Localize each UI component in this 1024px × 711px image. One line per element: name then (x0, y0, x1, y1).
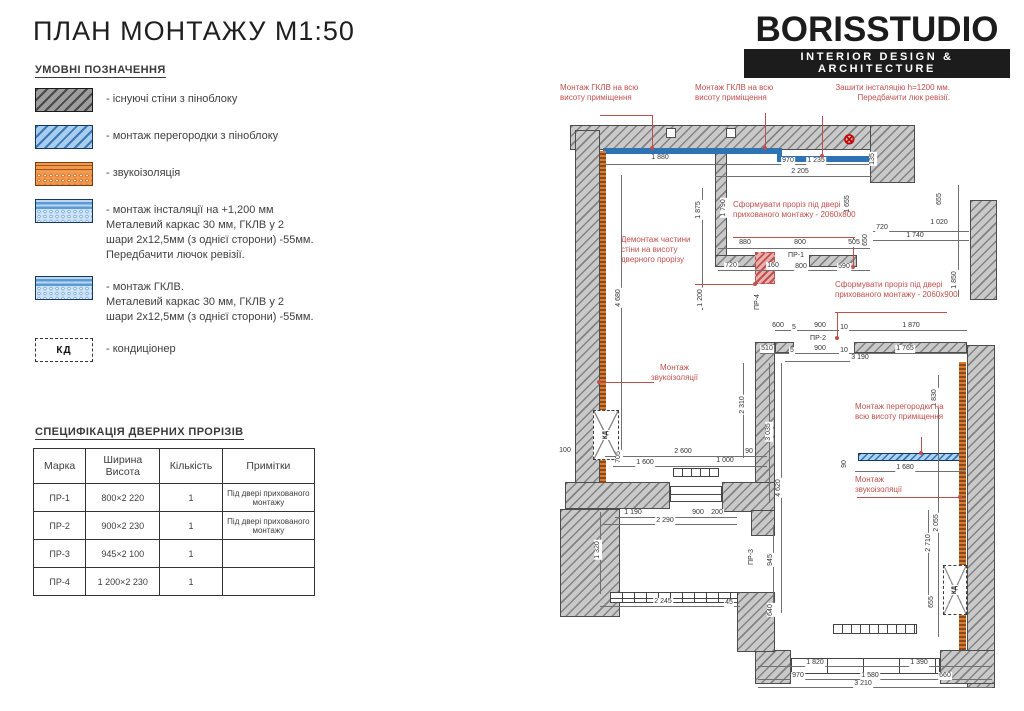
spec-row: ПР-41 200×2 2301 (34, 568, 315, 596)
dimension-label: 2 310 (739, 395, 747, 415)
vent-notch (666, 128, 676, 138)
inst-swatch (35, 199, 93, 223)
dimension-label: 900 (813, 345, 827, 353)
dimension-label: 160 (766, 262, 780, 270)
dimension-label: 90 (841, 459, 849, 469)
dimension-label: 945 (767, 553, 775, 567)
spec-cell: ПР-2 (34, 512, 86, 540)
window (610, 592, 738, 603)
spec-heading: СПЕЦИФІКАЦІЯ ДВЕРНИХ ПРОРІЗІВ (35, 426, 244, 440)
plan-annotation: Сформувати проріз під двері прихованого … (835, 280, 963, 300)
dimension-label: 1 870 (901, 322, 921, 330)
spec-cell: ПР-4 (34, 568, 86, 596)
plan-annotation: Сформувати проріз під двері прихованого … (733, 200, 861, 220)
spec-col-header: Примітки (222, 449, 314, 484)
spec-cell: ПР-3 (34, 540, 86, 568)
floor-plan: КД КД ⊗ 1 8809701 2352 20588080050572 (555, 80, 1020, 710)
logo-name: BORISSTUDIO (744, 12, 1010, 48)
dimension-line (758, 666, 992, 667)
dimension-label: 720 (875, 224, 889, 232)
dimension-label: 1 235 (806, 157, 826, 165)
leader-line (600, 115, 652, 116)
spec-cell: ПР-1 (34, 484, 86, 512)
opening-mark: ПР-4 (754, 293, 762, 311)
dimension-label: 800 (793, 239, 807, 247)
dimension-label: 640 (767, 603, 775, 617)
leader-dot (958, 495, 962, 499)
wall-segment (751, 510, 775, 536)
dimension-label: 4 620 (775, 478, 783, 498)
spec-cell: 945×2 100 (86, 540, 160, 568)
spec-row: ПР-1800×2 2201Під двері прихованого монт… (34, 484, 315, 512)
leader-line (733, 237, 855, 238)
dimension-label: 900 (813, 322, 827, 330)
window (670, 486, 722, 502)
leader-dot (597, 380, 601, 384)
dimension-label: 90 (744, 448, 754, 456)
dimension-label: 590 (837, 263, 851, 271)
dimension-label: 1 020 (929, 219, 949, 227)
spec-cell: 1 (160, 540, 223, 568)
dimension-label: 3 210 (853, 680, 873, 688)
spec-col-header: Кількість (160, 449, 223, 484)
dimension-label: 4 680 (615, 288, 623, 308)
dimension-label: 650 (862, 233, 870, 247)
cond-swatch: КД (35, 338, 93, 362)
spec-cell: 1 (160, 512, 223, 540)
wall-segment (970, 200, 997, 300)
dimension-label: 10 (839, 324, 849, 332)
partition-swatch (35, 125, 93, 149)
dimension-label: 1 875 (695, 200, 703, 220)
dimension-label: 2 055 (933, 513, 941, 533)
spec-cell: 900×2 230 (86, 512, 160, 540)
leader-dot (650, 146, 654, 150)
legend-label: - звукоізоляція (106, 162, 180, 181)
dimension-label: 880 (738, 239, 752, 247)
dimension-label: 45 (724, 599, 734, 607)
dimension-label: 1 820 (805, 659, 825, 667)
dimension-label: 1 320 (594, 540, 602, 560)
plan-annotation: Монтаж перегородки на всю висоту приміще… (855, 402, 947, 422)
dimension-label: 800 (794, 263, 808, 271)
leader-line (822, 116, 823, 154)
studio-logo: BORISSTUDIO INTERIOR DESIGN & ARCHITECTU… (744, 12, 1010, 78)
dimension-line (615, 517, 737, 518)
spec-table: МаркаШирина ВисотаКількістьПримітки ПР-1… (33, 448, 315, 596)
leader-line (837, 312, 838, 338)
legend-label: - монтаж інсталяції на +1,200 ммМеталеви… (106, 199, 314, 263)
dimension-label: 510 (760, 345, 774, 353)
spec-cell: 1 200×2 230 (86, 568, 160, 596)
leader-dot (753, 282, 757, 286)
spec-cell: 1 (160, 484, 223, 512)
dimension-label: 900 (691, 509, 705, 517)
dimension-label: 3 190 (850, 354, 870, 362)
wall-segment (967, 345, 995, 688)
legend-heading: УМОВНІ ПОЗНАЧЕННЯ (35, 64, 166, 78)
dimension-label: 2 290 (655, 517, 675, 525)
plan-annotation: Зашити інсталяцію h=1200 мм. Передбачити… (810, 83, 950, 103)
spec-body: ПР-1800×2 2201Під двері прихованого монт… (34, 484, 315, 596)
opening-mark: ПР-3 (748, 548, 756, 566)
dimension-label: 135 (869, 152, 877, 166)
spec-col-header: Ширина Висота (86, 449, 160, 484)
legend-label: - кондиціонер (106, 338, 176, 357)
leader-line (857, 497, 961, 498)
plan-annotation: Монтаж ГКЛВ на всю висоту приміщення (695, 83, 795, 103)
dimension-label: 1 580 (860, 672, 880, 680)
plan-annotation: Монтаж звукоізоляції (855, 475, 930, 495)
spec-cell (222, 540, 314, 568)
plan-annotation: Монтаж ГКЛВ на всю висоту приміщення (560, 83, 660, 103)
legend-item: - звукоізоляція (35, 162, 365, 186)
wall-segment (737, 592, 775, 652)
dimension-label: 655 (928, 595, 936, 609)
dimension-line (775, 330, 967, 331)
legend-item: - монтаж ГКЛВ.Металевий каркас 30 мм, ГК… (35, 276, 365, 325)
dimension-label: 1 600 (635, 459, 655, 467)
dimension-label: 655 (936, 192, 944, 206)
legend-item: КД- кондиціонер (35, 338, 365, 362)
dimension-label: 970 (781, 157, 795, 165)
dimension-line (873, 240, 969, 241)
dimension-label: 1 765 (895, 345, 915, 353)
dimension-label: 1 790 (720, 198, 728, 218)
dimension-label: 2 710 (925, 533, 933, 553)
dimension-label: 1 390 (909, 659, 929, 667)
leader-dot (919, 451, 923, 455)
leader-dot (835, 336, 839, 340)
leader-line (765, 113, 766, 148)
dimension-line (758, 687, 992, 688)
spec-cell (222, 568, 314, 596)
dimension-label: 10 (839, 347, 849, 355)
dimension-label: 970 (791, 672, 805, 680)
dimension-label: 2 600 (673, 448, 693, 456)
dimension-label: 2 205 (790, 168, 810, 176)
sound-swatch (35, 162, 93, 186)
dimension-label: 720 (724, 262, 738, 270)
dimension-label: 5 (789, 347, 795, 355)
dimension-label: 100 (558, 447, 572, 455)
spec-cell: Під двері прихованого монтажу (222, 512, 314, 540)
gkl-lining-strip (603, 148, 777, 154)
spec-cell: 800×2 220 (86, 484, 160, 512)
logo-tagline: INTERIOR DESIGN & ARCHITECTURE (744, 49, 1010, 78)
radiator (833, 624, 917, 634)
wall-segment (755, 342, 775, 484)
spec-row: ПР-3945×2 1001 (34, 540, 315, 568)
spec-cell: 1 (160, 568, 223, 596)
legend-label: - монтаж ГКЛВ.Металевий каркас 30 мм, ГК… (106, 276, 314, 325)
sheet: { "sheet": { "title": "ПЛАН МОНТАЖУ М1:5… (0, 0, 1024, 711)
dimension-label: 705 (615, 450, 623, 464)
wall-segment (570, 125, 872, 150)
dimension-label: 200 (710, 509, 724, 517)
plan-annotation: Монтаж звукоізоляції (637, 363, 712, 383)
wall-segment (565, 482, 670, 509)
existing-swatch (35, 88, 93, 112)
opening-mark: ПР-2 (809, 335, 827, 343)
leader-line (835, 312, 947, 313)
dimension-label: 600 (771, 322, 785, 330)
dimension-label: 1 190 (623, 509, 643, 517)
ventilation-icon: ⊗ (843, 133, 856, 147)
dimension-line (715, 176, 872, 177)
dimension-label: 1 680 (895, 464, 915, 472)
dimension-label: 505 (847, 239, 861, 247)
vent-notch (726, 128, 736, 138)
wall-segment (722, 482, 775, 512)
legend-label: - монтаж перегородки з піноблоку (106, 125, 278, 144)
dimension-label: 1 880 (650, 154, 670, 162)
dimension-line (718, 248, 870, 249)
legend-item: - монтаж інсталяції на +1,200 ммМеталеви… (35, 199, 365, 263)
dimension-label: 1 200 (697, 288, 705, 308)
opening-mark: ПР-1 (787, 252, 805, 260)
new-partition (858, 453, 960, 461)
dimension-label: 1 000 (715, 457, 735, 465)
dimension-line (928, 510, 929, 605)
leader-line (695, 284, 755, 285)
radiator (673, 468, 719, 477)
dimension-label: 2 245 (653, 598, 673, 606)
legend-item: - монтаж перегородки з піноблоку (35, 125, 365, 149)
page-title: ПЛАН МОНТАЖУ М1:50 (33, 16, 355, 47)
dimension-line (600, 606, 740, 607)
dimension-label: 660 (938, 672, 952, 680)
dimension-label: 1 740 (905, 232, 925, 240)
gklv-swatch (35, 276, 93, 300)
conditioner-mark: КД (56, 345, 71, 356)
spec-row: ПР-2900×2 2301Під двері прихованого монт… (34, 512, 315, 540)
legend-items: - існуючі стіни з піноблоку- монтаж пере… (35, 88, 365, 375)
spec-cell: Під двері прихованого монтажу (222, 484, 314, 512)
leader-line (652, 115, 653, 148)
spec-header-row: МаркаШирина ВисотаКількістьПримітки (34, 449, 315, 484)
legend-label: - існуючі стіни з піноблоку (106, 88, 237, 107)
plan-annotation: Демонтаж частини стіни на висоту дверног… (621, 235, 711, 265)
dimension-line (605, 164, 870, 165)
legend-item: - існуючі стіни з піноблоку (35, 88, 365, 112)
leader-dot (851, 265, 855, 269)
dimension-label: 5 (791, 324, 797, 332)
dimension-line (621, 175, 622, 460)
dimension-label: 3 035 (765, 422, 773, 442)
air-conditioner-box: КД (943, 565, 967, 615)
spec-col-header: Марка (34, 449, 86, 484)
leader-dot (763, 146, 767, 150)
